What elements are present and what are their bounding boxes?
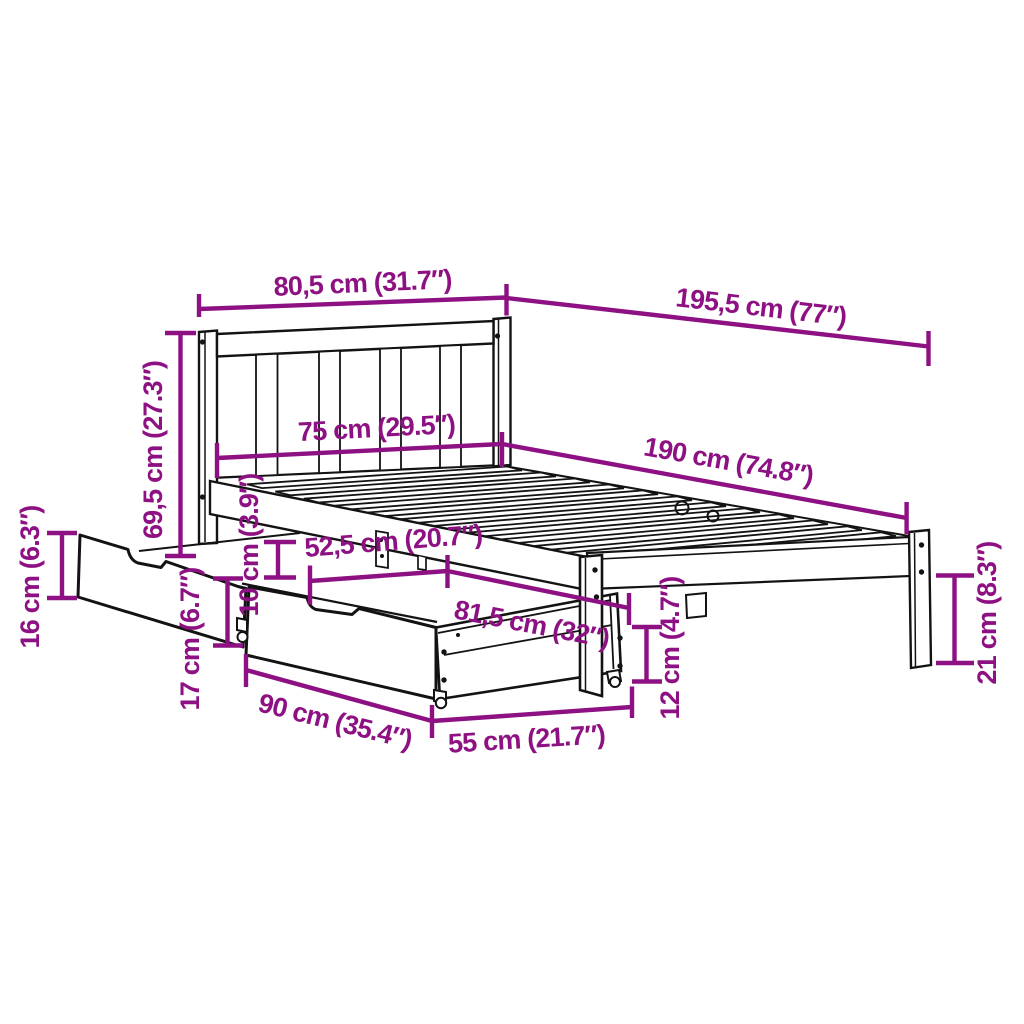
svg-text:16 cm (6.3″): 16 cm (6.3″) [15, 506, 45, 649]
svg-text:10 cm (3.9″): 10 cm (3.9″) [234, 474, 264, 617]
svg-text:12 cm (4.7″): 12 cm (4.7″) [655, 577, 685, 720]
svg-text:69,5 cm (27.3″): 69,5 cm (27.3″) [138, 361, 168, 539]
svg-text:21 cm (8.3″): 21 cm (8.3″) [972, 542, 1002, 685]
svg-text:17 cm (6.7″): 17 cm (6.7″) [175, 568, 205, 711]
